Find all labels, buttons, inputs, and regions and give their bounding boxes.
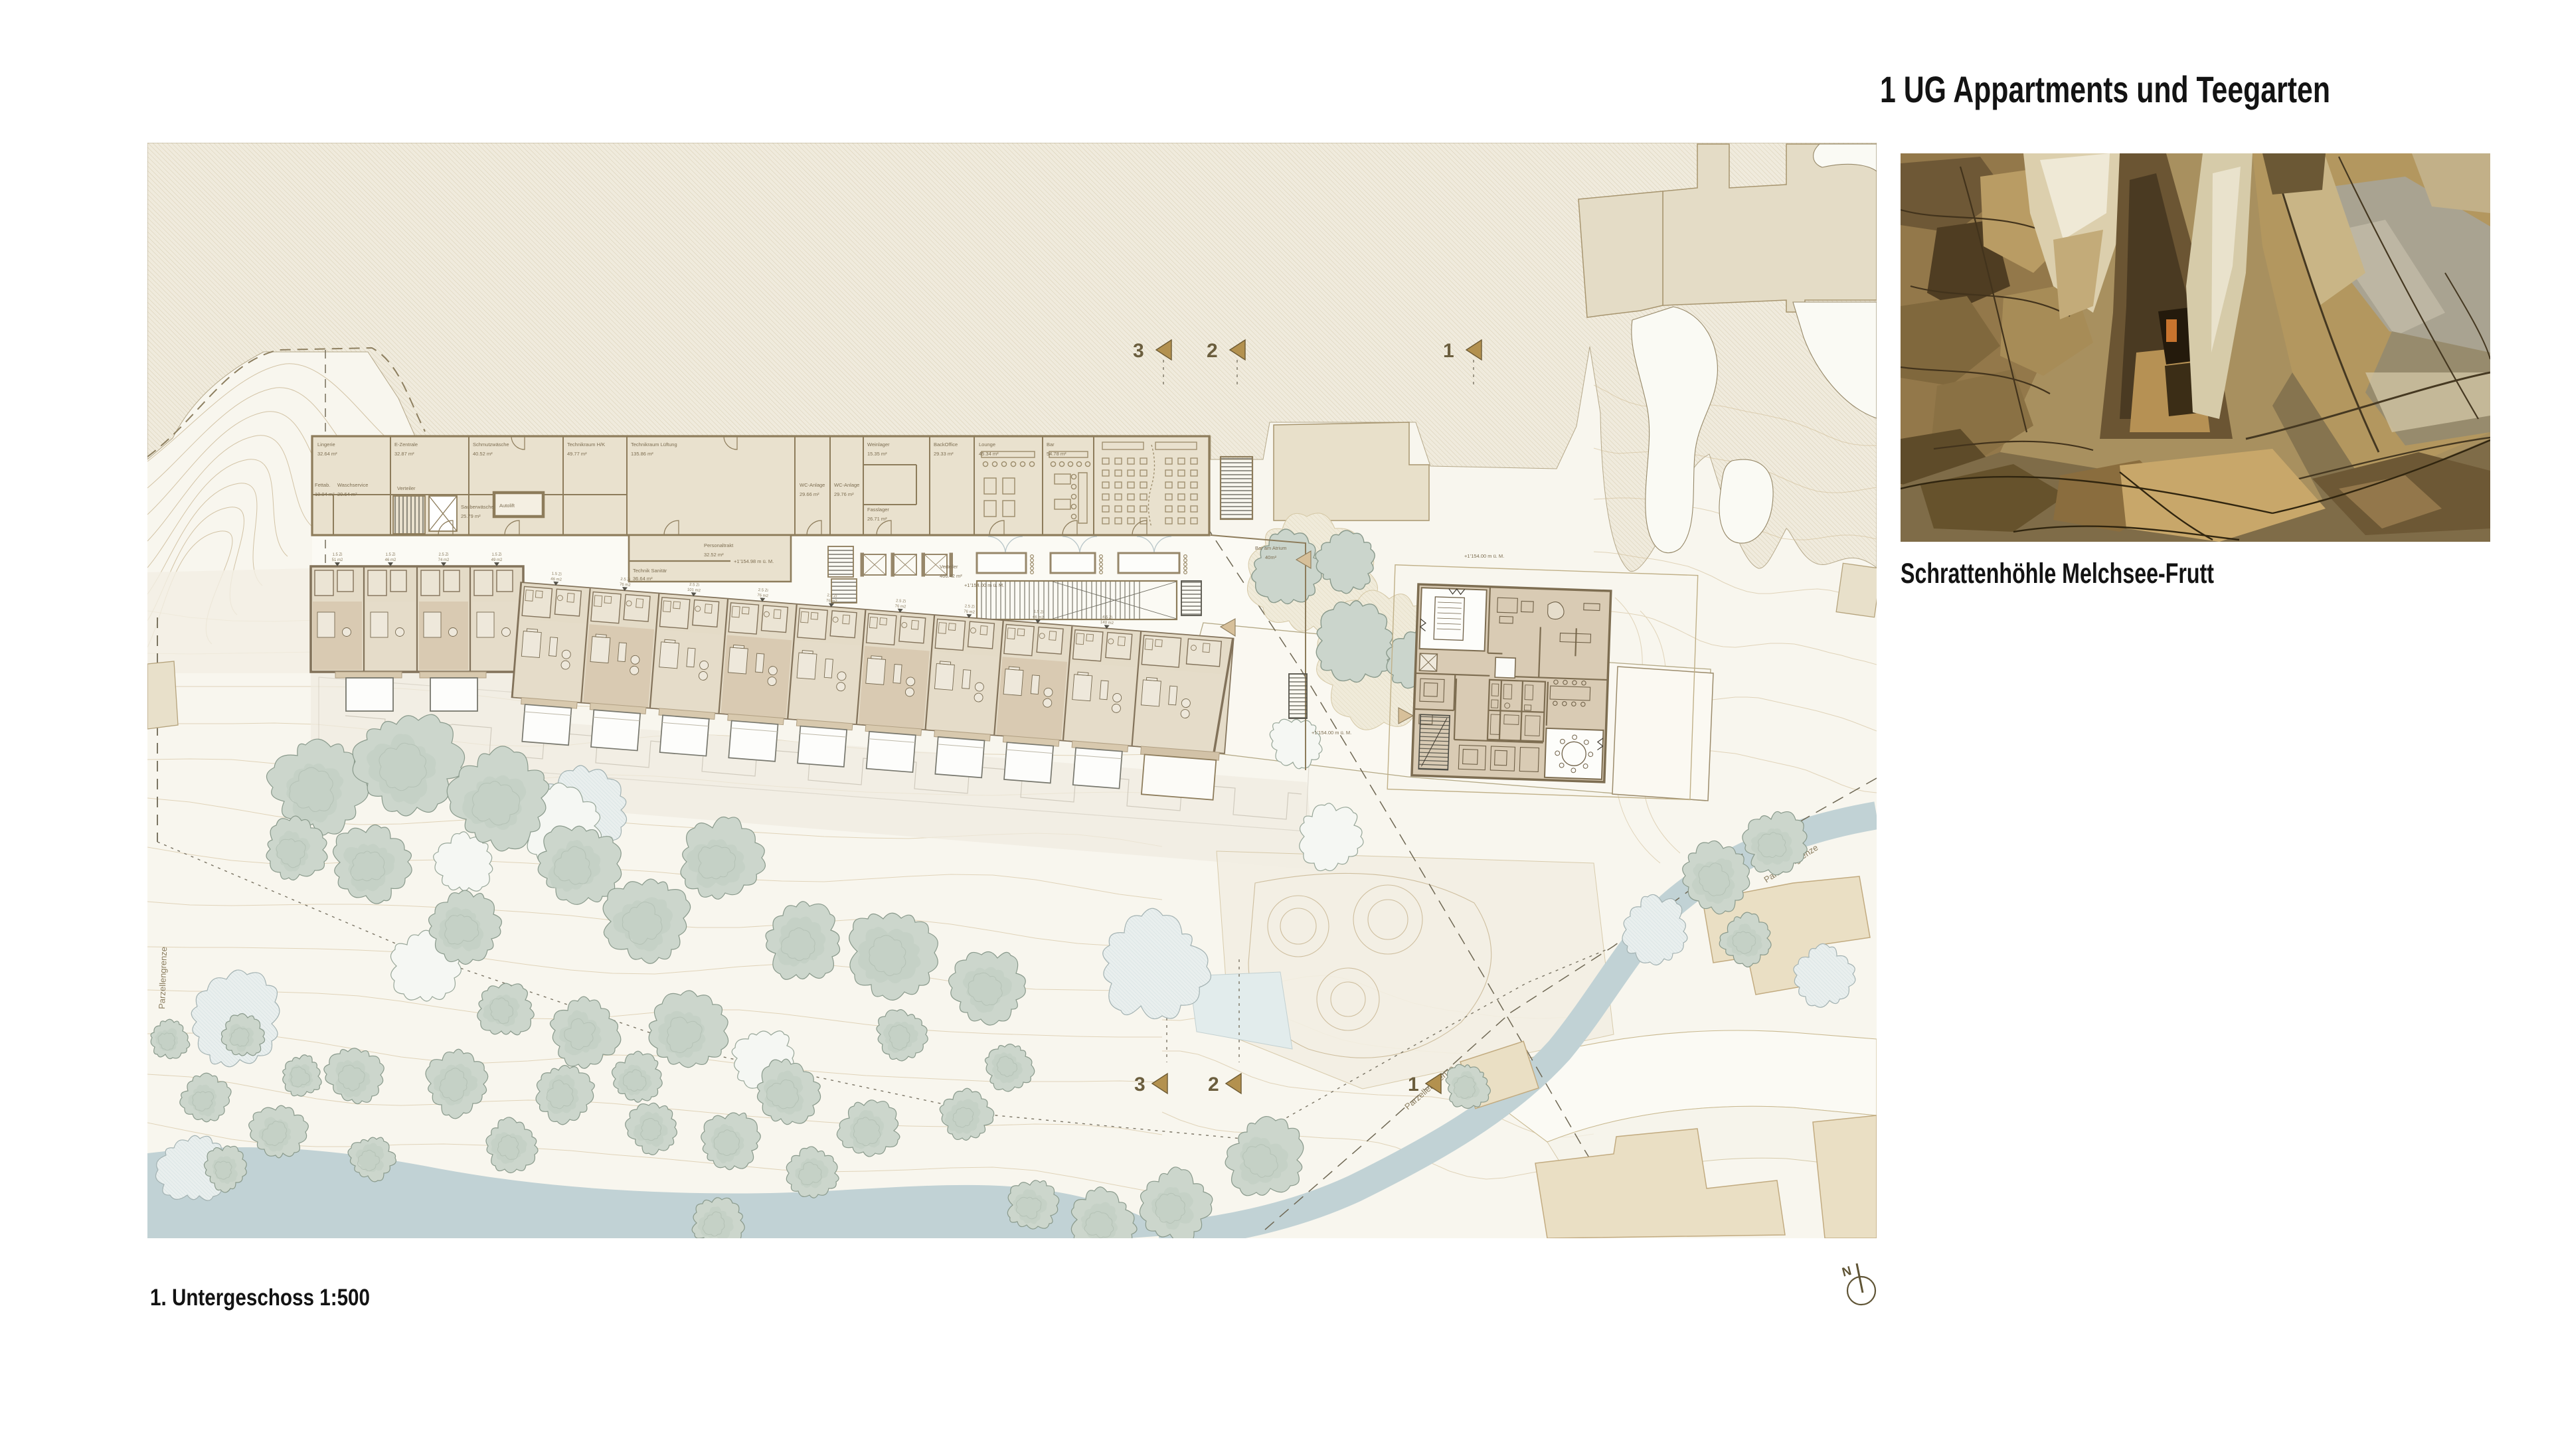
svg-text:2.5 Zi: 2.5 Zi — [758, 588, 768, 593]
svg-text:Fettab.: Fettab. — [315, 482, 330, 488]
svg-text:Technikraum H/K: Technikraum H/K — [567, 442, 605, 447]
svg-text:10.04 m²: 10.04 m² — [315, 491, 335, 497]
svg-text:466.42 m²: 466.42 m² — [940, 573, 962, 579]
svg-text:29.76 m²: 29.76 m² — [834, 491, 854, 497]
svg-text:15.35 m²: 15.35 m² — [867, 451, 887, 457]
svg-text:Lounge: Lounge — [979, 442, 995, 447]
svg-text:E-Zentrale: E-Zentrale — [394, 442, 418, 447]
svg-text:2.5 Zi: 2.5 Zi — [827, 594, 837, 598]
svg-text:1.5 Zi: 1.5 Zi — [1033, 610, 1043, 615]
svg-text:32.52 m²: 32.52 m² — [704, 552, 724, 558]
svg-text:2.5 Zi: 2.5 Zi — [896, 599, 906, 604]
svg-text:Autolift: Autolift — [499, 503, 515, 509]
svg-text:26.71 m²: 26.71 m² — [867, 516, 887, 522]
svg-text:74 m2: 74 m2 — [438, 558, 450, 562]
svg-text:45.34 m²: 45.34 m² — [979, 451, 999, 457]
svg-text:32.87 m²: 32.87 m² — [394, 451, 414, 457]
svg-text:36.64 m²: 36.64 m² — [633, 576, 653, 582]
svg-text:WC-Anlage: WC-Anlage — [834, 482, 859, 488]
svg-text:WC-Anlage: WC-Anlage — [800, 482, 825, 488]
svg-text:Bar am Atrium: Bar am Atrium — [1255, 545, 1287, 551]
svg-text:2.5 Zi: 2.5 Zi — [438, 553, 448, 557]
svg-text:Lingerie: Lingerie — [317, 442, 335, 447]
svg-text:29.33 m²: 29.33 m² — [934, 451, 954, 457]
svg-text:20.64 m²: 20.64 m² — [337, 491, 357, 497]
svg-text:49 m2: 49 m2 — [491, 558, 503, 562]
svg-text:40m²: 40m² — [1265, 554, 1277, 560]
svg-text:+1’154.00 m ü. M.: +1’154.00 m ü. M. — [1464, 553, 1504, 559]
svg-text:+1’154.00 m ü. M.: +1’154.00 m ü. M. — [1312, 730, 1351, 736]
svg-text:1. Untergeschoss 1:500: 1. Untergeschoss 1:500 — [150, 1285, 370, 1311]
svg-text:Schrattenhöhle Melchsee-Frutt: Schrattenhöhle Melchsee-Frutt — [1901, 558, 2214, 590]
svg-text:51 m2: 51 m2 — [332, 558, 343, 562]
svg-text:49.77 m²: 49.77 m² — [567, 451, 587, 457]
svg-text:135.86 m²: 135.86 m² — [631, 451, 653, 457]
svg-text:BackOffice: BackOffice — [934, 442, 958, 447]
svg-text:2: 2 — [1208, 1074, 1219, 1095]
svg-text:2: 2 — [1207, 340, 1218, 362]
svg-text:Technikraum Lüftung: Technikraum Lüftung — [631, 442, 677, 447]
svg-text:1: 1 — [1443, 340, 1454, 362]
svg-text:1 UG Appartments und Teegarten: 1 UG Appartments und Teegarten — [1880, 68, 2330, 110]
svg-text:Fasslager: Fasslager — [867, 507, 889, 513]
svg-text:Personaltrakt: Personaltrakt — [704, 542, 734, 548]
svg-text:25.79 m²: 25.79 m² — [461, 513, 481, 519]
svg-text:29.66 m²: 29.66 m² — [800, 491, 819, 497]
svg-text:2.5 Zi: 2.5 Zi — [620, 578, 630, 582]
svg-text:2.5 Zi: 2.5 Zi — [965, 605, 975, 609]
svg-text:1: 1 — [1408, 1074, 1419, 1095]
svg-text:3: 3 — [1133, 340, 1144, 362]
svg-text:2.5 Zi: 2.5 Zi — [689, 583, 699, 588]
svg-text:Waschservice: Waschservice — [337, 482, 368, 488]
svg-text:3: 3 — [1134, 1074, 1146, 1095]
svg-text:Schmutzwäsche: Schmutzwäsche — [473, 442, 509, 447]
svg-text:40.52 m²: 40.52 m² — [473, 451, 493, 457]
svg-text:Bar: Bar — [1047, 442, 1055, 447]
svg-text:Verteiler: Verteiler — [940, 564, 958, 570]
svg-text:1.5 Zi: 1.5 Zi — [332, 553, 342, 557]
svg-text:32.64 m²: 32.64 m² — [317, 451, 337, 457]
svg-text:1.5 Zi: 1.5 Zi — [551, 572, 561, 577]
svg-text:1.5 Zi: 1.5 Zi — [385, 553, 395, 557]
svg-text:Weinlager: Weinlager — [867, 442, 890, 447]
svg-text:Sauberwäsche: Sauberwäsche — [461, 504, 494, 510]
svg-text:Technik Sanitär: Technik Sanitär — [633, 568, 667, 574]
svg-text:Verteiler: Verteiler — [397, 485, 416, 491]
svg-text:+1’154.00 m ü. M.: +1’154.00 m ü. M. — [964, 582, 1004, 588]
svg-text:46 m2: 46 m2 — [385, 558, 396, 562]
svg-text:4.5 Zi: 4.5 Zi — [1102, 615, 1112, 620]
svg-text:+1’154.98 m ü. M.: +1’154.98 m ü. M. — [734, 558, 774, 564]
svg-text:N: N — [1841, 1264, 1853, 1280]
svg-text:54.78 m²: 54.78 m² — [1047, 451, 1066, 457]
svg-text:1.5 Zi: 1.5 Zi — [491, 553, 501, 557]
